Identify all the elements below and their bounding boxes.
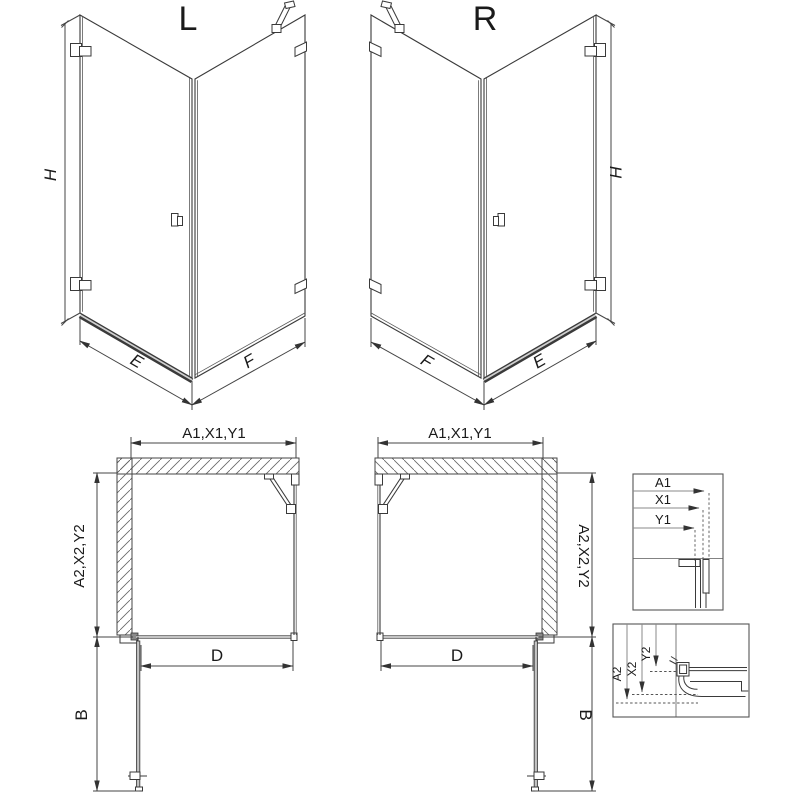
plan-left-dimension-top: A1,X1,Y1 bbox=[131, 425, 296, 458]
detail-top-dim-a1: A1 bbox=[655, 475, 671, 490]
detail-top-dim-y1: Y1 bbox=[655, 512, 671, 527]
plan-right-side-label: A2,X2,Y2 bbox=[575, 524, 592, 587]
plan-right-dimension-b: B bbox=[535, 637, 596, 791]
plan-left-dimension-d: D bbox=[141, 641, 293, 671]
iso-left-dimension-e: E bbox=[80, 316, 192, 410]
plan-right-swing-label: B bbox=[576, 709, 595, 720]
detail-bottom-dim-x2: X2 bbox=[625, 661, 639, 676]
iso-left-dimension-f: F bbox=[192, 318, 305, 405]
iso-view-left: L H E F bbox=[41, 0, 307, 410]
plan-right-top-label: A1,X1,Y1 bbox=[428, 425, 491, 442]
iso-left-height-label: H bbox=[41, 168, 60, 181]
plan-left-side-label: A2,X2,Y2 bbox=[71, 524, 88, 587]
detail-box-bottom: A2 X2 Y2 bbox=[610, 624, 749, 717]
shower-enclosure-dimension-diagram: L H E F R bbox=[0, 0, 800, 800]
plan-view-right: A1,X1,Y1 A2,X2,Y2 D B bbox=[375, 425, 596, 791]
detail-box-top: A1 X1 Y1 bbox=[633, 474, 723, 610]
plan-right-dimension-d: D bbox=[381, 641, 533, 671]
plan-view-left: A1,X1,Y1 A2,X2,Y2 D B bbox=[71, 425, 299, 791]
plan-right-door-label: D bbox=[451, 646, 463, 665]
iso-right-title: R bbox=[473, 0, 498, 38]
plan-left-door-label: D bbox=[211, 646, 223, 665]
diagram-canvas: L H E F R bbox=[0, 0, 800, 800]
iso-right-height-label: H bbox=[606, 166, 625, 179]
detail-bottom-dim-y2: Y2 bbox=[639, 646, 653, 661]
iso-right-dimension-e: E bbox=[484, 316, 596, 410]
iso-view-right: R H E F bbox=[370, 0, 626, 410]
iso-left-title: L bbox=[179, 0, 198, 38]
plan-left-swing-label: B bbox=[72, 709, 91, 720]
detail-bottom-dim-a2: A2 bbox=[610, 666, 624, 681]
detail-top-dim-x1: X1 bbox=[655, 492, 671, 507]
plan-right-dimension-top: A1,X1,Y1 bbox=[378, 425, 543, 458]
iso-right-dimension-f: F bbox=[371, 318, 484, 405]
plan-left-top-label: A1,X1,Y1 bbox=[182, 425, 245, 442]
plan-left-dimension-b: B bbox=[72, 637, 139, 791]
